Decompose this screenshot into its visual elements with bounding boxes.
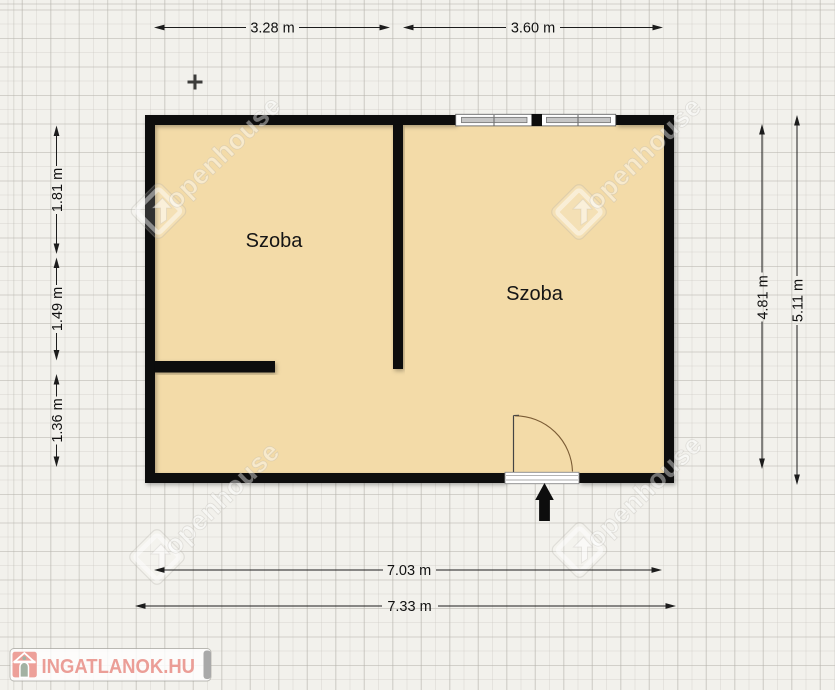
- svg-text:1.49 m: 1.49 m: [50, 287, 66, 331]
- svg-text:Szoba: Szoba: [506, 283, 564, 305]
- svg-text:1.81 m: 1.81 m: [50, 168, 66, 212]
- svg-text:4.81 m: 4.81 m: [756, 275, 772, 319]
- svg-text:1.36 m: 1.36 m: [50, 398, 66, 442]
- svg-text:7.03 m: 7.03 m: [387, 563, 431, 579]
- svg-text:INGATLANOK.HU: INGATLANOK.HU: [42, 655, 196, 678]
- svg-text:5.11 m: 5.11 m: [791, 279, 807, 322]
- svg-text:7.33 m: 7.33 m: [387, 599, 431, 615]
- svg-text:3.28 m: 3.28 m: [250, 21, 294, 37]
- svg-text:3.60 m: 3.60 m: [511, 21, 555, 37]
- svg-text:Szoba: Szoba: [246, 230, 304, 252]
